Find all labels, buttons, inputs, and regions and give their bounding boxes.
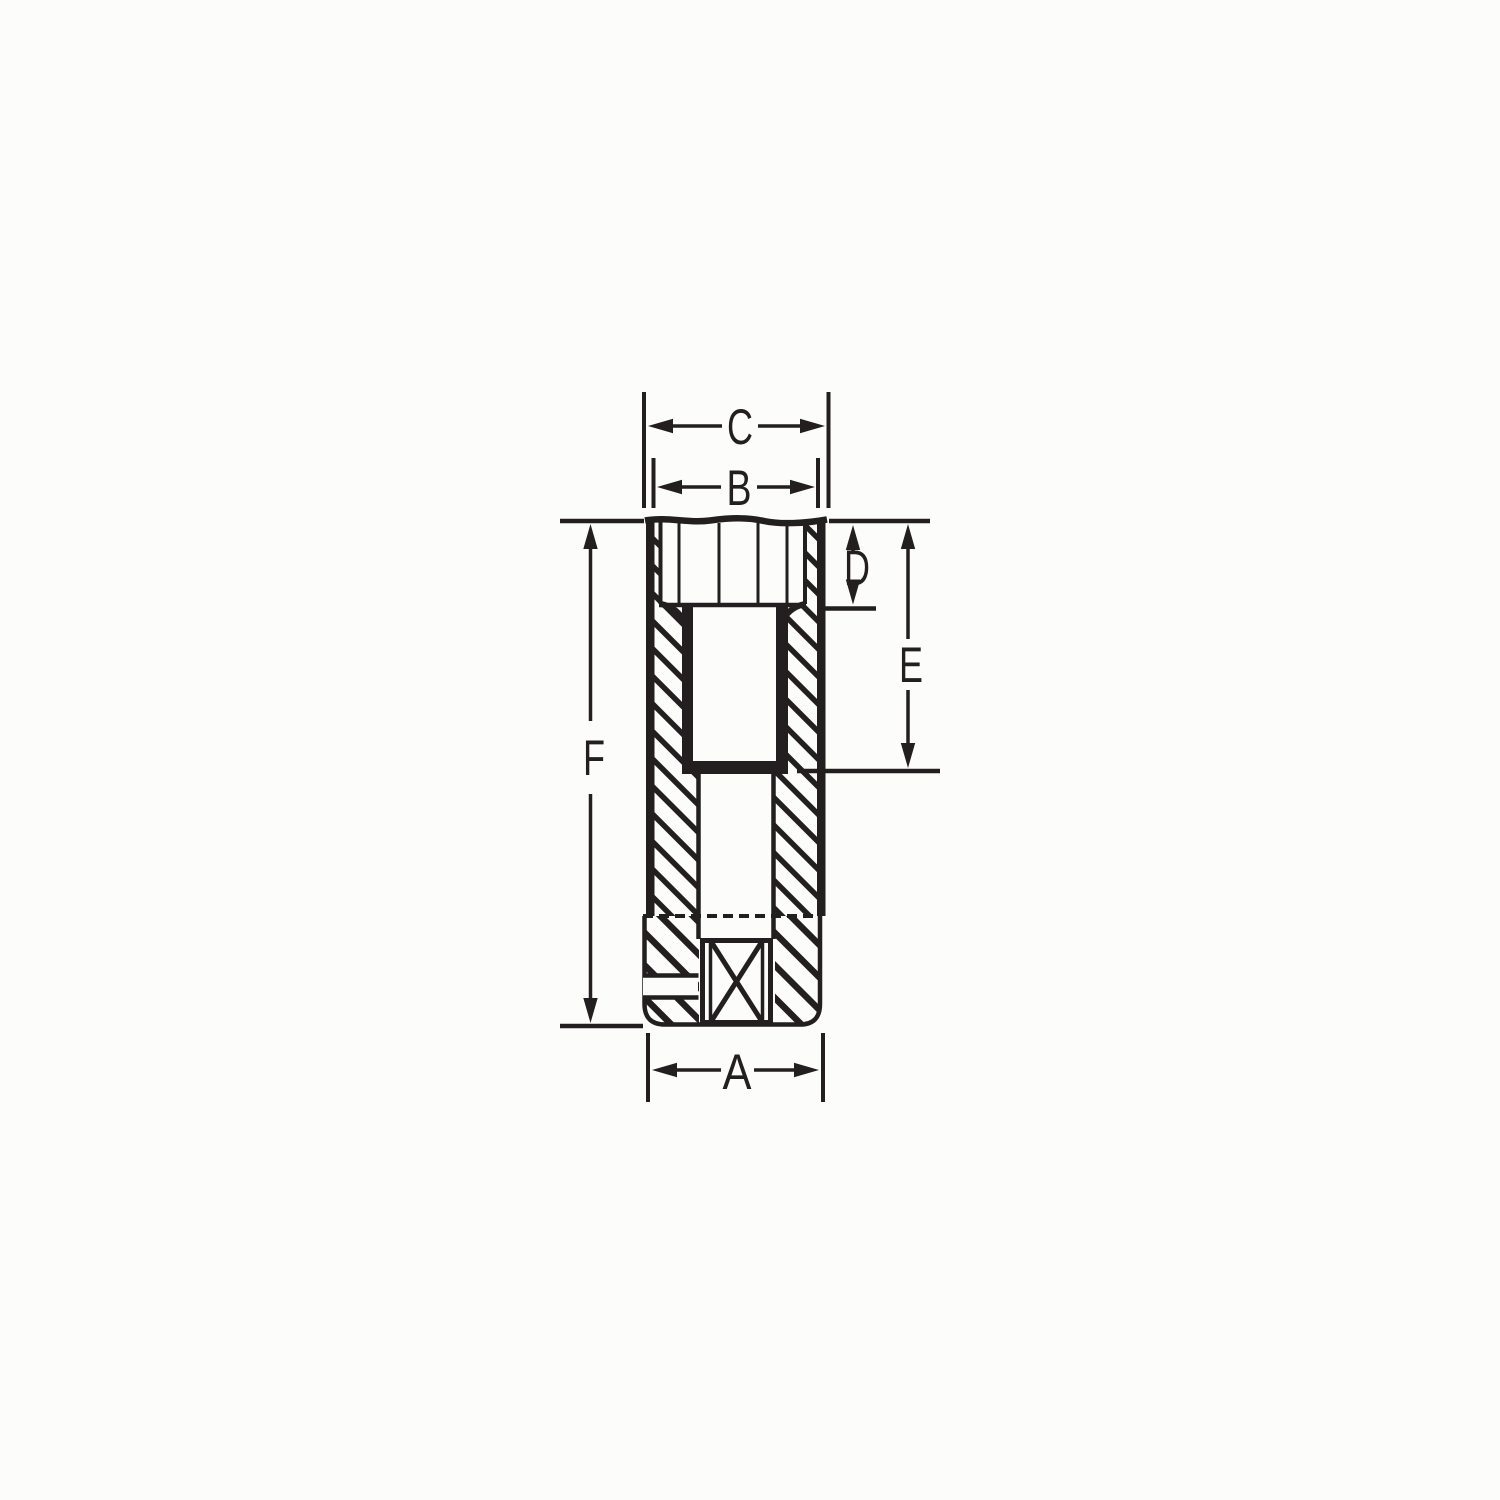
cavity-wall-left	[682, 605, 693, 774]
pin-hole	[643, 976, 699, 998]
dimension-f: F	[583, 524, 605, 1023]
dim-label-b: B	[727, 460, 752, 516]
top-rim-edge	[645, 518, 827, 523]
hatch-cavity-left	[655, 605, 683, 773]
arrow-right-icon	[790, 480, 815, 494]
hatch-base-left	[643, 916, 699, 1026]
drive-square	[703, 940, 771, 1023]
arrow-up-icon	[901, 524, 915, 549]
arrow-right-icon	[794, 1063, 819, 1077]
arrow-down-icon	[583, 998, 597, 1023]
socket-cross-section-diagram: C B D E	[0, 0, 1500, 1500]
outer-wall-right	[817, 518, 826, 916]
hatch-base-right	[775, 916, 822, 1026]
cavity-floor	[682, 761, 788, 774]
hatch-cavity-right	[788, 605, 817, 773]
arrow-down-icon	[901, 743, 915, 768]
dim-label-a: A	[723, 1044, 753, 1100]
dimension-a: A	[648, 1033, 823, 1102]
hatch-channel-left	[655, 773, 699, 916]
cavity-wall-right	[776, 605, 788, 774]
hex-cavity	[682, 605, 788, 774]
dim-label-c: C	[727, 399, 753, 455]
arrow-left-icon	[657, 480, 682, 494]
hatch-top-right	[807, 522, 817, 604]
arrow-right-icon	[800, 419, 825, 433]
arrow-up-icon	[583, 524, 597, 549]
diagram-canvas: C B D E	[0, 0, 1500, 1500]
arrow-left-icon	[648, 419, 673, 433]
dimension-e: E	[899, 524, 923, 768]
dim-label-e: E	[899, 637, 923, 693]
dimension-d: D	[844, 525, 870, 605]
arrow-left-icon	[652, 1063, 677, 1077]
hatch-channel-right	[776, 773, 818, 916]
outer-wall-left	[646, 518, 655, 916]
dim-label-d: D	[844, 540, 870, 596]
dimension-b: B	[654, 458, 819, 516]
dim-label-f: F	[583, 730, 605, 786]
